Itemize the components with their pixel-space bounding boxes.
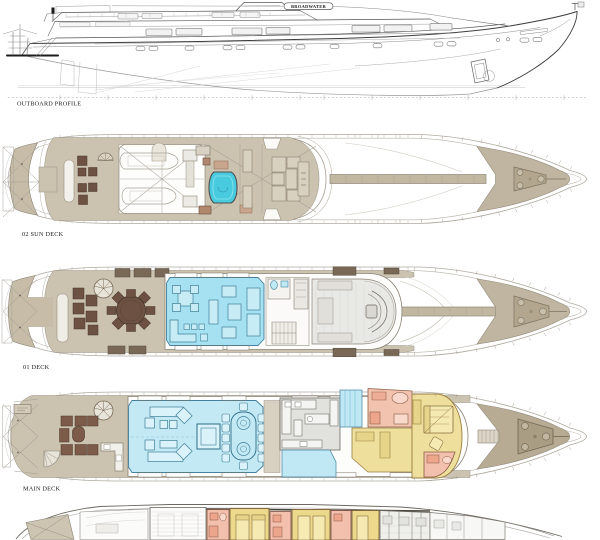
svg-text:BROADWATER: BROADWATER	[291, 4, 327, 9]
svg-text:MAIN DECK: MAIN DECK	[23, 486, 61, 493]
svg-text:OUTBOARD PROFILE: OUTBOARD PROFILE	[17, 101, 81, 108]
svg-text:01 DECK: 01 DECK	[23, 364, 50, 371]
svg-text:02 SUN DECK: 02 SUN DECK	[22, 231, 64, 238]
